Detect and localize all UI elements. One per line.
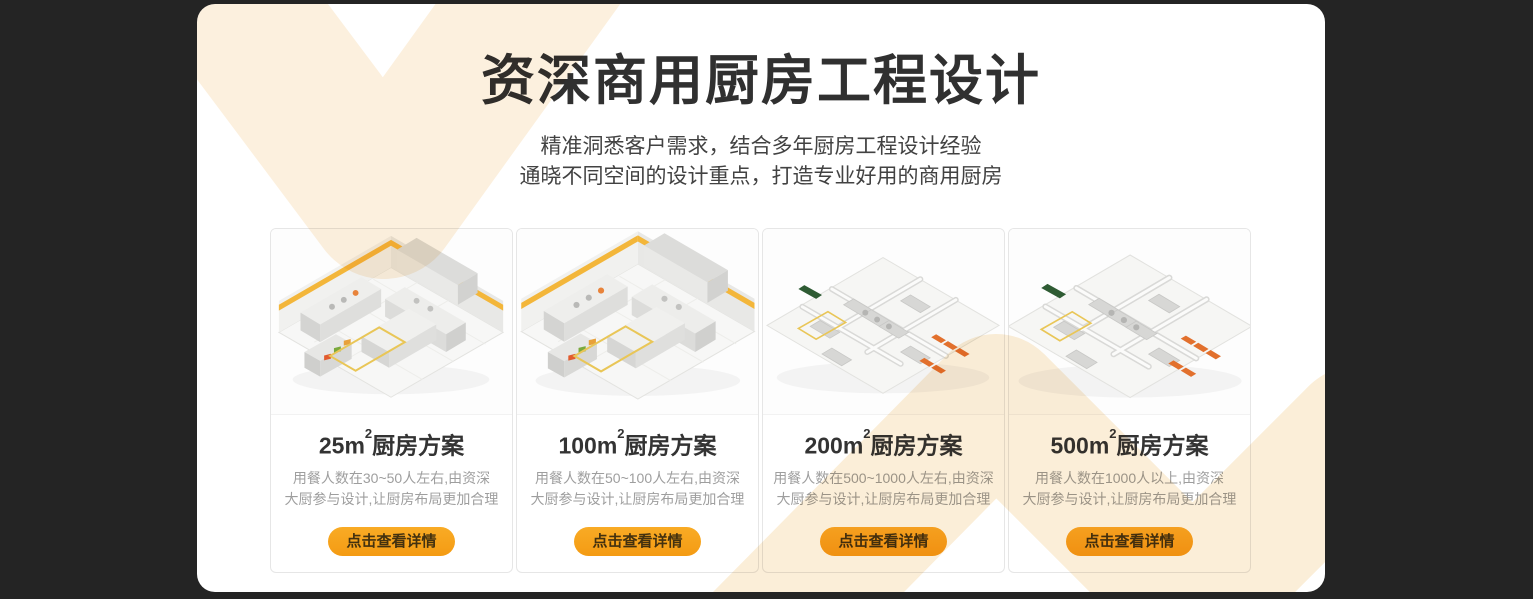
kitchen-plan-card-100sqm: 100m2厨房方案 用餐人数在50~100人左右,由资深 大厨参与设计,让厨房布… (516, 228, 759, 573)
view-details-button[interactable]: 点击查看详情 (328, 527, 455, 556)
card-title: 100m2厨房方案 (525, 427, 750, 460)
isometric-kitchen-medium-icon (517, 229, 758, 415)
card-description: 用餐人数在1000人以上,由资深 大厨参与设计,让厨房布局更加合理 (1017, 468, 1242, 510)
card-description: 用餐人数在50~100人左右,由资深 大厨参与设计,让厨房布局更加合理 (525, 468, 750, 510)
kitchen-design-section: 资深商用厨房工程设计 精准洞悉客户需求，结合多年厨房工程设计经验 通晓不同空间的… (197, 4, 1325, 592)
view-details-button[interactable]: 点击查看详情 (1066, 527, 1193, 556)
section-header: 资深商用厨房工程设计 精准洞悉客户需求，结合多年厨房工程设计经验 通晓不同空间的… (197, 4, 1325, 192)
superscript-2: 2 (617, 426, 624, 441)
superscript-2: 2 (1109, 426, 1116, 441)
view-details-button[interactable]: 点击查看详情 (820, 527, 947, 556)
isometric-kitchen-small-icon (271, 229, 512, 415)
kitchen-plan-card-500sqm: 500m2厨房方案 用餐人数在1000人以上,由资深 大厨参与设计,让厨房布局更… (1008, 228, 1251, 573)
card-description: 用餐人数在30~50人左右,由资深 大厨参与设计,让厨房布局更加合理 (279, 468, 504, 510)
card-title: 200m2厨房方案 (771, 427, 996, 460)
section-subtitle-line2: 通晓不同空间的设计重点，打造专业好用的商用厨房 (197, 162, 1325, 192)
kitchen-plan-card-200sqm: 200m2厨房方案 用餐人数在500~1000人左右,由资深 大厨参与设计,让厨… (762, 228, 1005, 573)
card-description: 用餐人数在500~1000人左右,由资深 大厨参与设计,让厨房布局更加合理 (771, 468, 996, 510)
view-details-button[interactable]: 点击查看详情 (574, 527, 701, 556)
card-title: 25m2厨房方案 (279, 427, 504, 460)
kitchen-plan-card-list: 25m2厨房方案 用餐人数在30~50人左右,由资深 大厨参与设计,让厨房布局更… (270, 228, 1252, 573)
isometric-kitchen-xlarge-icon (1009, 229, 1250, 415)
card-title: 500m2厨房方案 (1017, 427, 1242, 460)
isometric-kitchen-large-icon (763, 229, 1004, 415)
superscript-2: 2 (365, 426, 372, 441)
section-title: 资深商用厨房工程设计 (197, 50, 1325, 112)
kitchen-plan-card-25sqm: 25m2厨房方案 用餐人数在30~50人左右,由资深 大厨参与设计,让厨房布局更… (270, 228, 513, 573)
superscript-2: 2 (863, 426, 870, 441)
section-subtitle-line1: 精准洞悉客户需求，结合多年厨房工程设计经验 (197, 132, 1325, 162)
